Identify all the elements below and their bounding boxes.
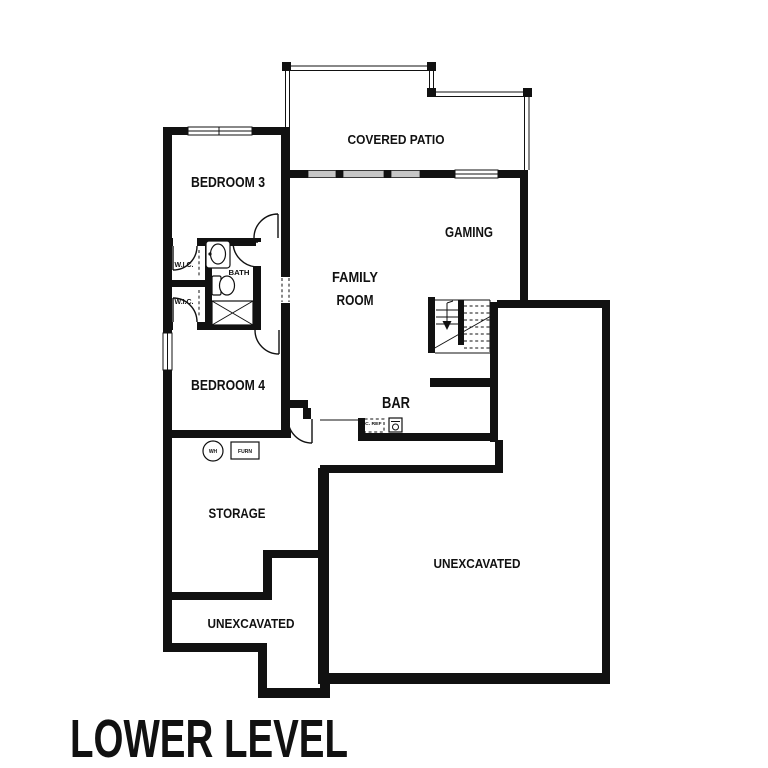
bedroom4-door [255, 330, 279, 354]
patio-post [523, 88, 532, 97]
patio-post [427, 62, 436, 71]
label-unexcavated-right: UNEXCAVATED [434, 556, 521, 571]
gaming-window [455, 170, 498, 178]
water-heater-icon: WH [203, 441, 223, 461]
label-bedroom4: BEDROOM 4 [191, 377, 266, 394]
label-storage: STORAGE [209, 505, 266, 521]
label-gaming: GAMING [445, 224, 493, 241]
patio-outline [282, 62, 532, 170]
bedroom3-door [254, 214, 278, 238]
label-bath: BATH [229, 268, 250, 277]
bar-sink-icon [389, 418, 402, 432]
furnace-label: FURN [238, 449, 252, 455]
floor-plan-page: WH FURN UC. REF COVERED PATIO BEDROOM 3 … [0, 0, 768, 768]
water-heater-label: WH [209, 449, 218, 455]
bedroom4-window [163, 333, 172, 370]
stairs-down-arrow [443, 301, 454, 330]
floor-plan-drawing: WH FURN UC. REF COVERED PATIO BEDROOM 3 … [0, 0, 768, 768]
label-bedroom3: BEDROOM 3 [191, 174, 265, 191]
toilet-icon [212, 276, 235, 295]
label-family-room-line2: ROOM [337, 292, 374, 309]
label-wic1: W.I.C. [175, 262, 194, 269]
label-wic2: W.I.C. [175, 299, 194, 306]
patio-post [427, 88, 436, 97]
family-cased-opening [282, 278, 289, 302]
uc-ref-label: UC. REF [362, 421, 382, 426]
shower-icon [212, 301, 253, 325]
patio-post [282, 62, 291, 71]
label-unexcavated-left: UNEXCAVATED [208, 616, 295, 631]
stairs [433, 300, 491, 353]
furnace-icon: FURN [231, 442, 259, 459]
storage-door [288, 419, 312, 443]
sink-icon [206, 241, 230, 268]
label-covered-patio: COVERED PATIO [348, 132, 445, 147]
label-family-room-line1: FAMILY [332, 269, 378, 286]
walls [163, 127, 610, 698]
plan-title: LOWER LEVEL [70, 709, 348, 768]
label-bar: BAR [382, 395, 410, 412]
bedroom3-window [188, 127, 252, 135]
patio-slider-doors [308, 171, 420, 178]
